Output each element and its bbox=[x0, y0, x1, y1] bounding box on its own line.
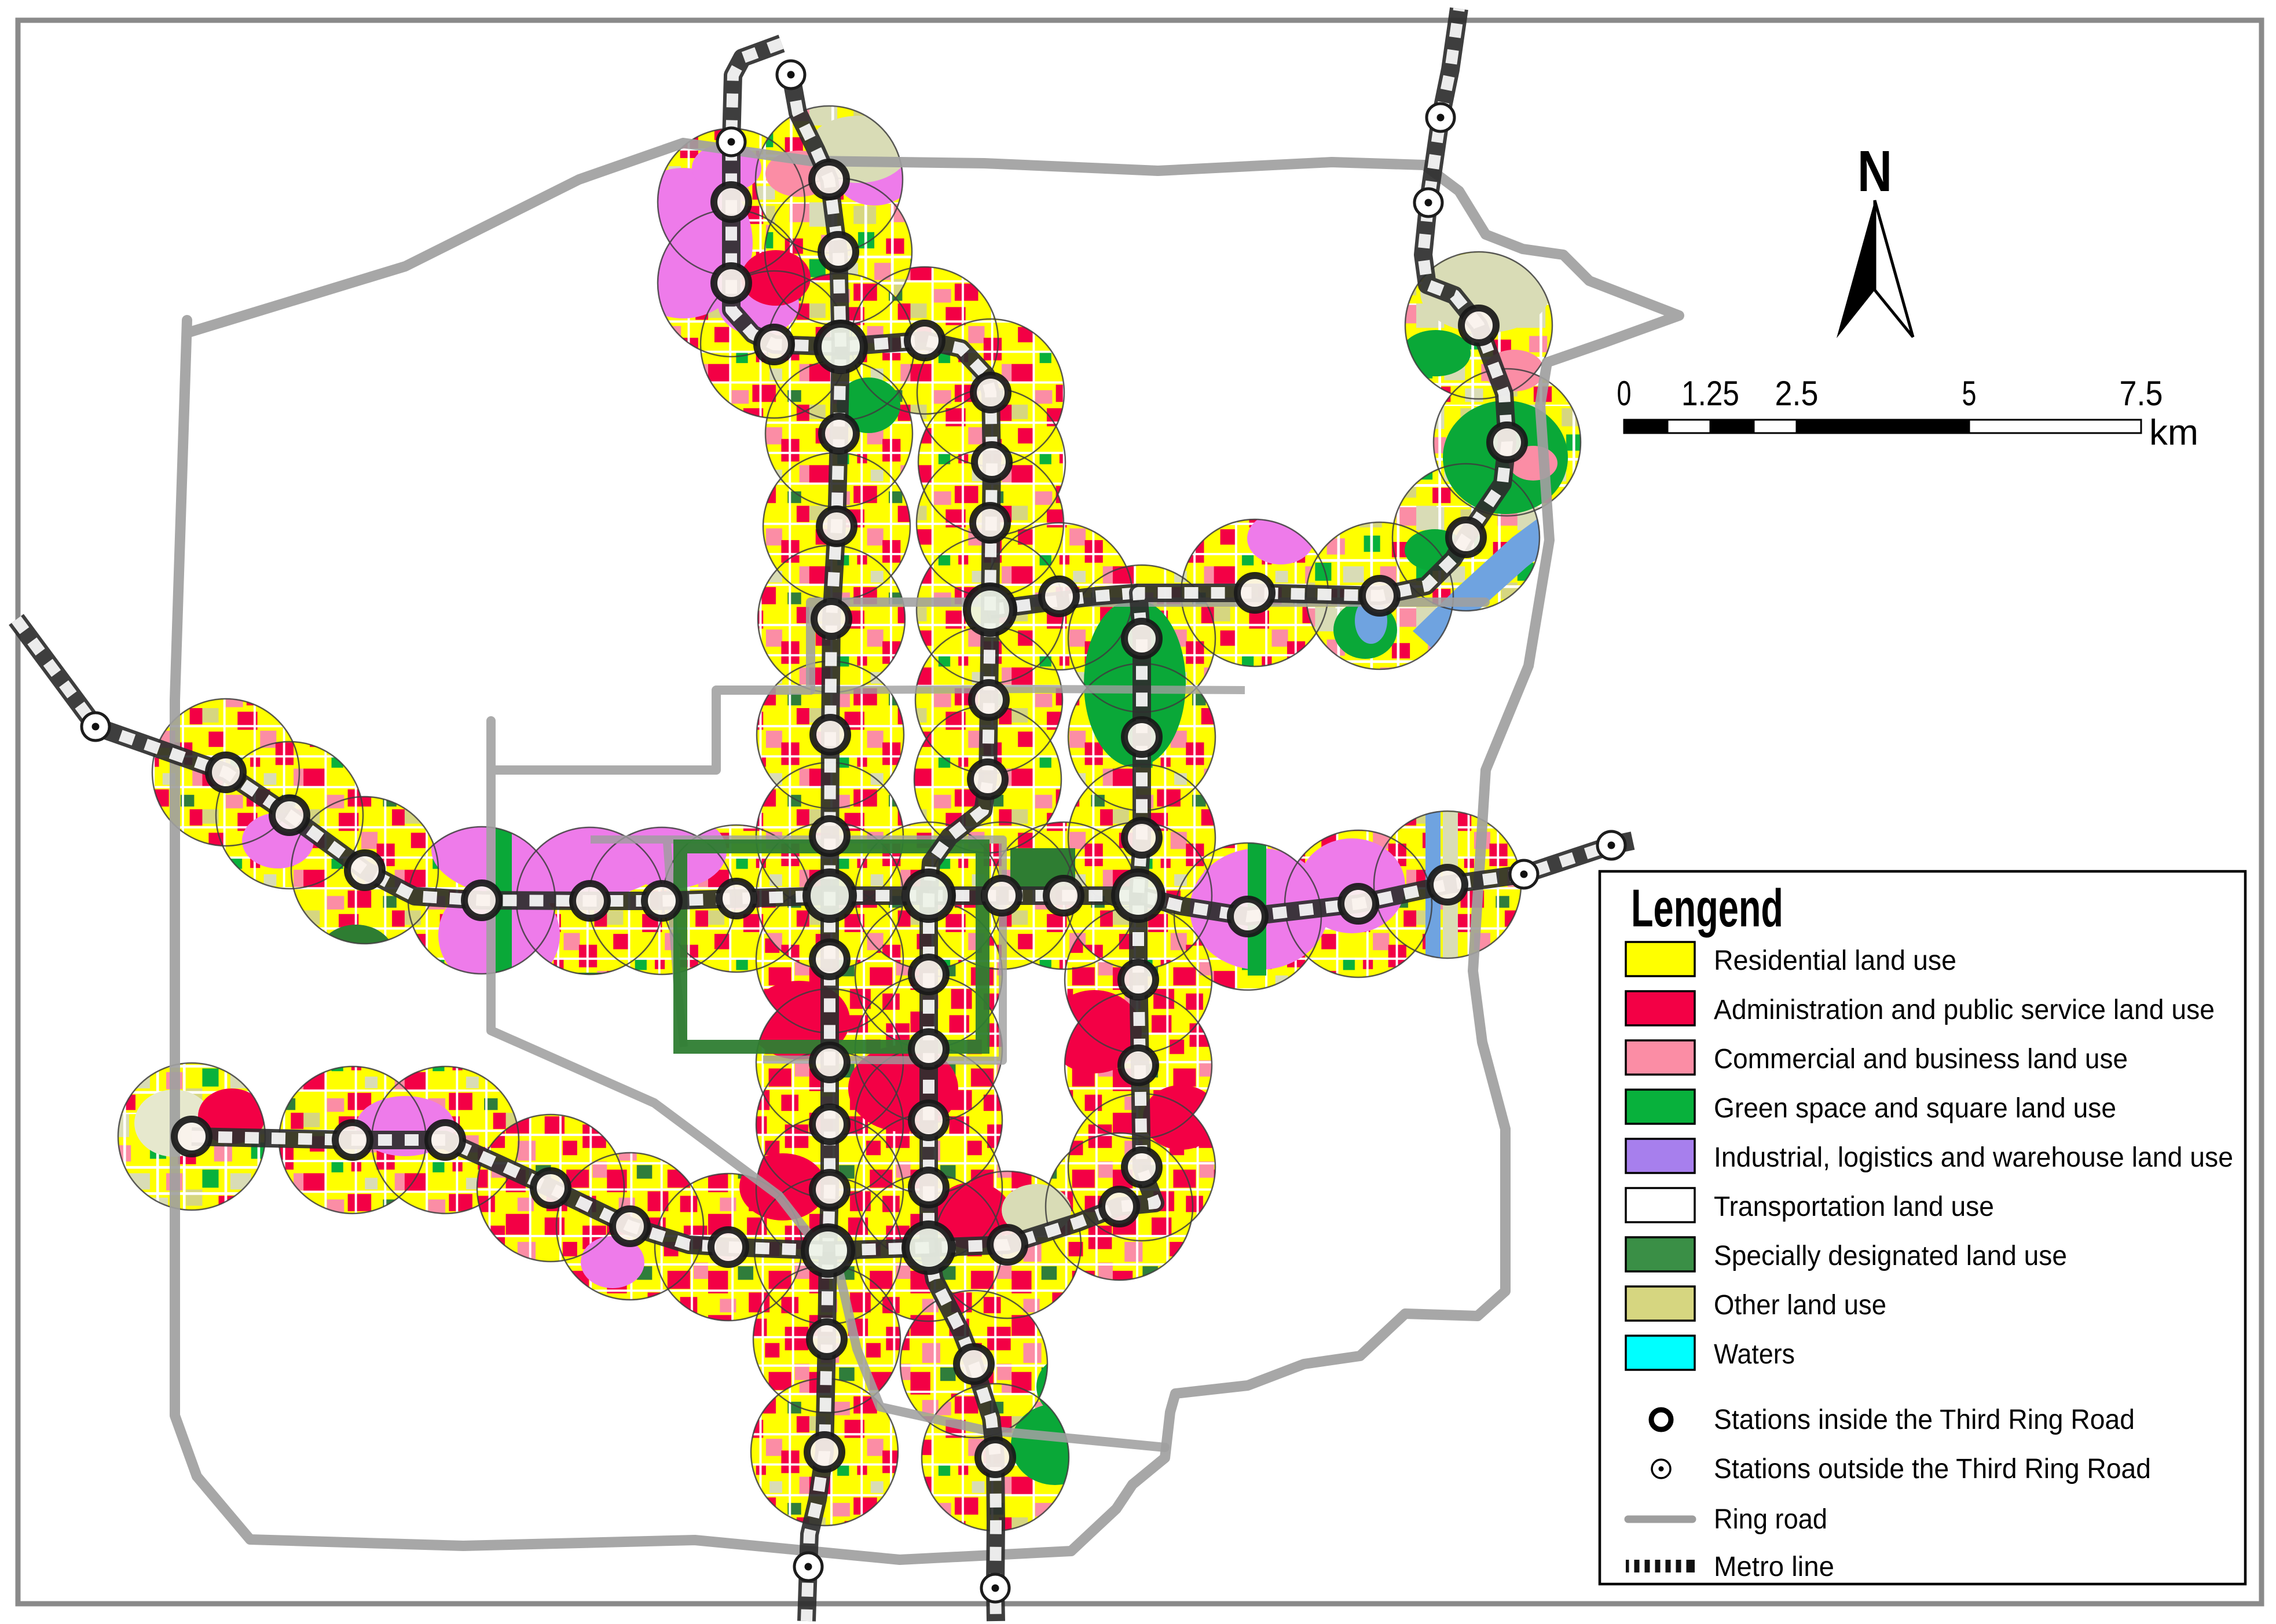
svg-text:1.25: 1.25 bbox=[1681, 374, 1739, 413]
svg-text:2.5: 2.5 bbox=[1775, 374, 1819, 413]
svg-text:Industrial, logistics and ware: Industrial, logistics and warehouse land… bbox=[1714, 1142, 2233, 1173]
svg-text:Metro line: Metro line bbox=[1714, 1552, 1834, 1582]
svg-text:5: 5 bbox=[1962, 374, 1977, 413]
svg-text:Lengend: Lengend bbox=[1631, 879, 1783, 938]
svg-text:Other land use: Other land use bbox=[1714, 1290, 1886, 1321]
svg-text:km: km bbox=[2149, 413, 2198, 453]
svg-text:Residential land use: Residential land use bbox=[1714, 945, 1956, 976]
svg-text:Ring road: Ring road bbox=[1714, 1504, 1827, 1535]
svg-text:7.5: 7.5 bbox=[2120, 374, 2163, 413]
svg-text:N: N bbox=[1857, 139, 1892, 204]
svg-text:Stations outside the Third Rin: Stations outside the Third Ring Road bbox=[1714, 1454, 2151, 1484]
svg-text:Green space and square land us: Green space and square land use bbox=[1714, 1093, 2116, 1124]
svg-text:Waters: Waters bbox=[1714, 1339, 1795, 1370]
svg-text:Stations inside the Third Ring: Stations inside the Third Ring Road bbox=[1714, 1405, 2135, 1435]
svg-text:0: 0 bbox=[1617, 374, 1632, 413]
svg-text:Specially designated land use: Specially designated land use bbox=[1714, 1241, 2067, 1271]
svg-text:Administration and public serv: Administration and public service land u… bbox=[1714, 995, 2215, 1025]
svg-text:Transportation land use: Transportation land use bbox=[1714, 1192, 1994, 1222]
svg-text:Commercial and business land u: Commercial and business land use bbox=[1714, 1044, 2128, 1075]
